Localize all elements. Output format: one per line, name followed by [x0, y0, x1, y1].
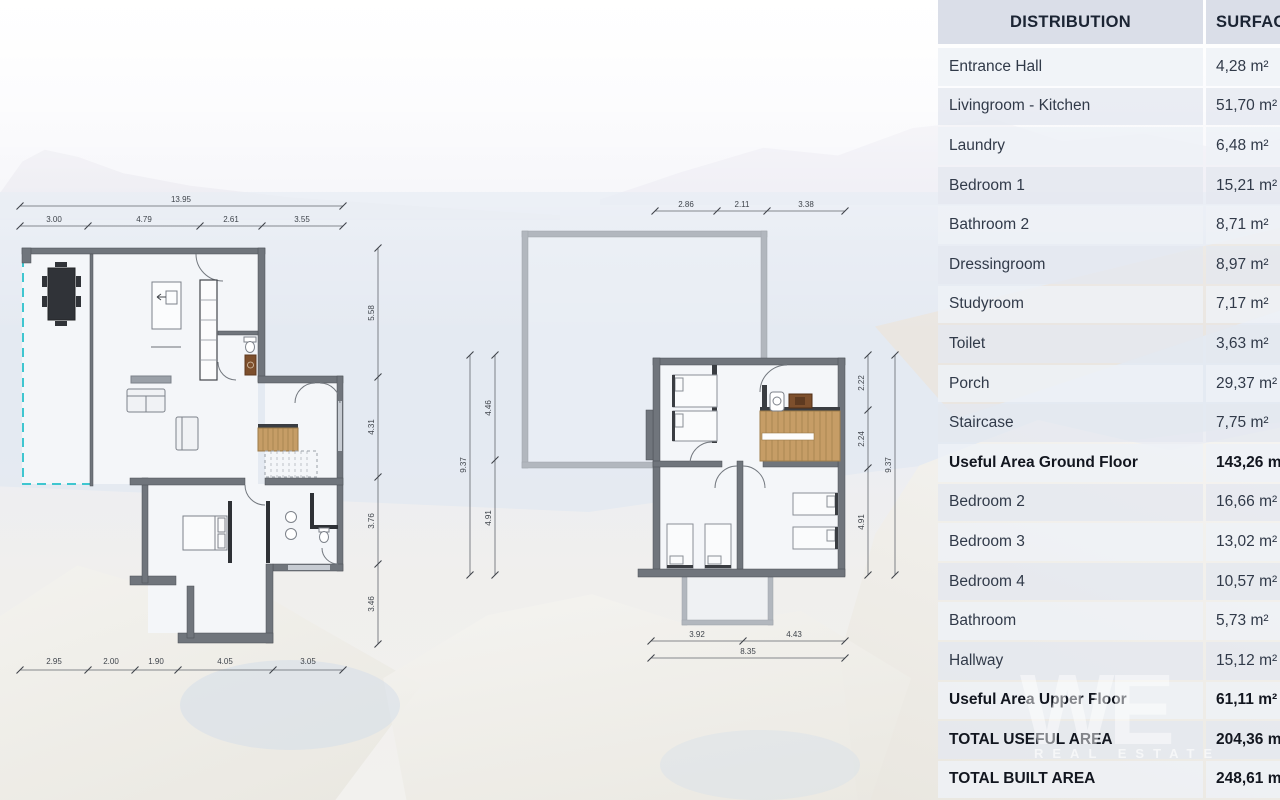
svg-text:4.91: 4.91 — [857, 514, 866, 530]
svg-text:3.38: 3.38 — [798, 200, 814, 209]
svg-text:4.79: 4.79 — [136, 215, 152, 224]
ground-floor-plan: 13.95 3.00 4.79 2.61 3.55 5.58 4.31 3.76… — [10, 196, 400, 686]
row-value: 16,66 m² — [1206, 484, 1280, 522]
tv-bench — [131, 376, 171, 383]
row-value: 6,48 m² — [1206, 127, 1280, 165]
header-surface: SURFACE — [1206, 0, 1280, 44]
svg-text:9.37: 9.37 — [459, 457, 468, 473]
row-value: 8,71 m² — [1206, 206, 1280, 244]
table-row: Bathroom 5,73 m² — [938, 602, 1280, 640]
row-value: 7,17 m² — [1206, 286, 1280, 324]
row-label: Bedroom 1 — [938, 167, 1203, 205]
row-label: Bathroom 2 — [938, 206, 1203, 244]
distribution-table: DISTRIBUTION SURFACE Entrance Hall 4,28 … — [938, 0, 1280, 798]
svg-text:2.86: 2.86 — [678, 200, 694, 209]
table-row: Livingroom - Kitchen 51,70 m² — [938, 88, 1280, 126]
row-label: Useful Area Upper Floor — [938, 682, 1203, 720]
row-value: 7,75 m² — [1206, 404, 1280, 442]
row-value: 61,11 m² — [1206, 682, 1280, 720]
svg-text:3.55: 3.55 — [294, 215, 310, 224]
row-label: Porch — [938, 365, 1203, 403]
row-value: 10,57 m² — [1206, 563, 1280, 601]
row-value: 143,26 m² — [1206, 444, 1280, 482]
svg-text:4.91: 4.91 — [484, 510, 493, 526]
row-value: 29,37 m² — [1206, 365, 1280, 403]
svg-text:3.92: 3.92 — [689, 630, 705, 639]
kitchen-island — [152, 282, 181, 329]
table-row: Laundry 6,48 m² — [938, 127, 1280, 165]
row-value: 248,61 m² — [1206, 761, 1280, 799]
svg-text:4.31: 4.31 — [367, 419, 376, 435]
row-value: 204,36 m² — [1206, 721, 1280, 759]
svg-text:2.95: 2.95 — [46, 657, 62, 666]
row-label: TOTAL USEFUL AREA — [938, 721, 1203, 759]
double-bed — [183, 516, 227, 550]
table-row: Useful Area Upper Floor 61,11 m² — [938, 682, 1280, 720]
svg-text:2.11: 2.11 — [735, 200, 751, 209]
row-label: Hallway — [938, 642, 1203, 680]
svg-text:4.05: 4.05 — [217, 657, 233, 666]
svg-text:3.00: 3.00 — [46, 215, 62, 224]
row-label: Bedroom 3 — [938, 523, 1203, 561]
svg-text:2.00: 2.00 — [103, 657, 119, 666]
row-label: Staircase — [938, 404, 1203, 442]
table-row: Dressingroom 8,97 m² — [938, 246, 1280, 284]
table-row: Bathroom 2 8,71 m² — [938, 206, 1280, 244]
row-value: 4,28 m² — [1206, 48, 1280, 86]
table-row: Entrance Hall 4,28 m² — [938, 48, 1280, 86]
table-row: TOTAL BUILT AREA 248,61 m² — [938, 761, 1280, 799]
row-value: 5,73 m² — [1206, 602, 1280, 640]
upper-floor-drawing: 2.86 2.11 3.38 9.37 4.46 4.91 2.22 2.24 … — [450, 196, 910, 676]
svg-text:5.58: 5.58 — [367, 305, 376, 321]
ground-floor-drawing: 13.95 3.00 4.79 2.61 3.55 5.58 4.31 3.76… — [10, 196, 400, 681]
header-distribution: DISTRIBUTION — [938, 0, 1203, 44]
table-row: Porch 29,37 m² — [938, 365, 1280, 403]
chaise-sofa — [176, 417, 198, 450]
laundry-appliance — [245, 355, 256, 375]
svg-text:4.43: 4.43 — [786, 630, 802, 639]
row-label: Bathroom — [938, 602, 1203, 640]
table-row: Bedroom 1 15,21 m² — [938, 167, 1280, 205]
table-row: Toilet 3,63 m² — [938, 325, 1280, 363]
row-value: 13,02 m² — [1206, 523, 1280, 561]
row-value: 3,63 m² — [1206, 325, 1280, 363]
distribution-table-header: DISTRIBUTION SURFACE — [938, 0, 1280, 44]
row-value: 15,21 m² — [1206, 167, 1280, 205]
bathroom-sink — [770, 392, 784, 411]
table-row: Bedroom 4 10,57 m² — [938, 563, 1280, 601]
table-row: Studyroom 7,17 m² — [938, 286, 1280, 324]
bathroom-vanity — [789, 394, 812, 408]
table-row: Bedroom 3 13,02 m² — [938, 523, 1280, 561]
row-value: 51,70 m² — [1206, 88, 1280, 126]
row-label: Dressingroom — [938, 246, 1203, 284]
row-value: 8,97 m² — [1206, 246, 1280, 284]
svg-text:2.61: 2.61 — [223, 215, 239, 224]
svg-text:9.37: 9.37 — [884, 457, 893, 473]
row-label: Studyroom — [938, 286, 1203, 324]
svg-text:2.22: 2.22 — [857, 375, 866, 391]
svg-text:8.35: 8.35 — [740, 647, 756, 656]
row-label: Bedroom 2 — [938, 484, 1203, 522]
svg-text:4.46: 4.46 — [484, 400, 493, 416]
table-row: Bedroom 2 16,66 m² — [938, 484, 1280, 522]
tall-cabinet — [200, 280, 217, 380]
wc-toilet — [244, 337, 256, 353]
upper-floor-plan: 2.86 2.11 3.38 9.37 4.46 4.91 2.22 2.24 … — [450, 196, 910, 681]
distribution-table-body: Entrance Hall 4,28 m² Livingroom - Kitch… — [938, 48, 1280, 798]
row-label: Laundry — [938, 127, 1203, 165]
table-row: Staircase 7,75 m² — [938, 404, 1280, 442]
svg-text:13.95: 13.95 — [171, 196, 192, 204]
svg-text:1.90: 1.90 — [148, 657, 164, 666]
svg-text:2.24: 2.24 — [857, 431, 866, 447]
sofa — [127, 389, 165, 412]
row-label: Entrance Hall — [938, 48, 1203, 86]
svg-text:3.46: 3.46 — [367, 596, 376, 612]
svg-text:3.05: 3.05 — [300, 657, 316, 666]
row-label: Useful Area Ground Floor — [938, 444, 1203, 482]
bathroom-toilet — [319, 528, 329, 543]
table-row: Useful Area Ground Floor 143,26 m² — [938, 444, 1280, 482]
staircase — [760, 411, 840, 461]
svg-text:3.76: 3.76 — [367, 513, 376, 529]
row-value: 15,12 m² — [1206, 642, 1280, 680]
table-row: Hallway 15,12 m² — [938, 642, 1280, 680]
row-label: Bedroom 4 — [938, 563, 1203, 601]
row-label: TOTAL BUILT AREA — [938, 761, 1203, 799]
row-label: Toilet — [938, 325, 1203, 363]
table-row: TOTAL USEFUL AREA 204,36 m² — [938, 721, 1280, 759]
dining-table — [42, 262, 81, 326]
row-label: Livingroom - Kitchen — [938, 88, 1203, 126]
